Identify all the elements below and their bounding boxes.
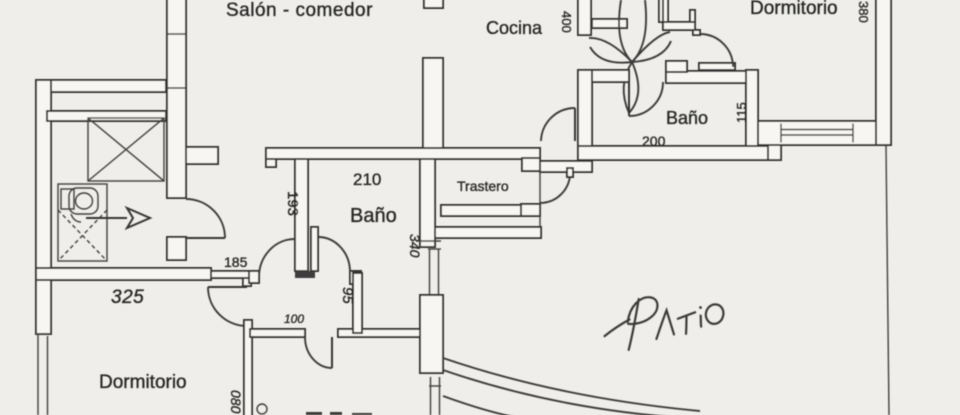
- svg-text:Baño: Baño: [350, 205, 397, 227]
- svg-text:400: 400: [559, 11, 574, 33]
- svg-text:115: 115: [734, 102, 749, 123]
- svg-text:100: 100: [284, 312, 304, 326]
- svg-text:95: 95: [339, 287, 356, 304]
- svg-text:Dormitorio: Dormitorio: [750, 0, 838, 19]
- svg-text:080: 080: [228, 390, 244, 414]
- svg-text:325: 325: [111, 287, 144, 308]
- svg-text:Trastero: Trastero: [457, 178, 509, 194]
- svg-text:Salón - comedor: Salón - comedor: [226, 0, 373, 21]
- svg-text:340: 340: [407, 234, 423, 258]
- svg-text:185: 185: [224, 254, 248, 270]
- svg-text:Dormitorio: Dormitorio: [99, 372, 187, 393]
- svg-text:380: 380: [856, 1, 871, 23]
- svg-text:Cocina: Cocina: [486, 18, 543, 38]
- svg-text:210: 210: [353, 170, 381, 189]
- svg-text:Baño: Baño: [666, 108, 708, 128]
- svg-text:193: 193: [284, 191, 301, 216]
